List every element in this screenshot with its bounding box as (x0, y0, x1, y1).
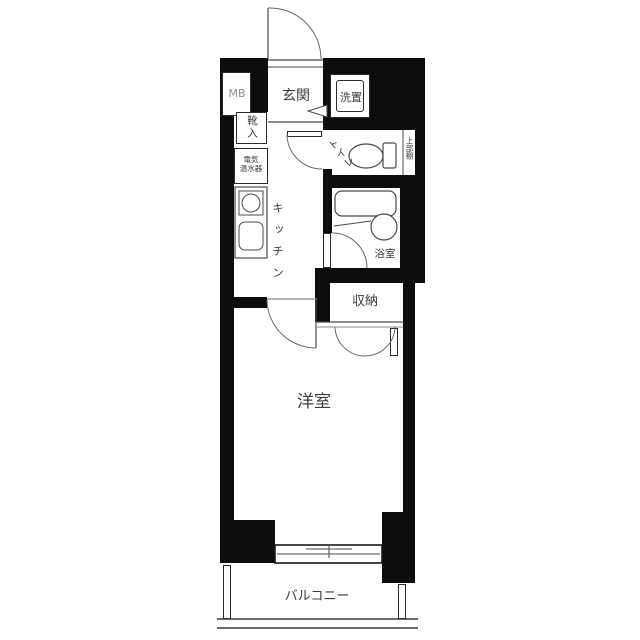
washer-space-label: 洗置 (338, 89, 364, 105)
bath-counter-line (334, 221, 371, 226)
kitchen-sink (239, 222, 263, 250)
water-heater-label-line2: 温水器 (236, 164, 266, 173)
entrance-label: 玄関 (275, 85, 317, 105)
room-door-arc (267, 300, 316, 348)
bath-basin (371, 214, 397, 240)
bathtub (335, 191, 396, 216)
meter-box-label: MB (224, 87, 250, 100)
balcony-label: バルコニー (272, 585, 362, 604)
plan-linework (0, 0, 640, 640)
shoe-cabinet-label: 靴入 (245, 115, 260, 140)
floor-plan: MB 玄関 洗置 靴入 電気 温水器 キッチン トイレ 上部棚 浴室 収納 洋室… (0, 0, 640, 640)
entrance-step-marker (308, 105, 327, 117)
toilet-door-arc (287, 134, 322, 169)
entrance-door-arc (268, 8, 321, 59)
bathroom-door-arc (332, 233, 367, 268)
storage-door-arc-left (335, 327, 365, 356)
toilet-tank (383, 143, 396, 168)
bathroom-label: 浴室 (370, 246, 400, 261)
storage-door-arc-right (365, 327, 395, 356)
storage-label: 収納 (345, 290, 385, 309)
kitchen-burner (242, 194, 260, 212)
water-heater-label-line1: 電気 (236, 155, 266, 164)
western-room-label: 洋室 (282, 387, 346, 412)
kitchen-label: キッチン (270, 202, 286, 288)
upper-shelf-label: 上部棚 (404, 137, 415, 160)
